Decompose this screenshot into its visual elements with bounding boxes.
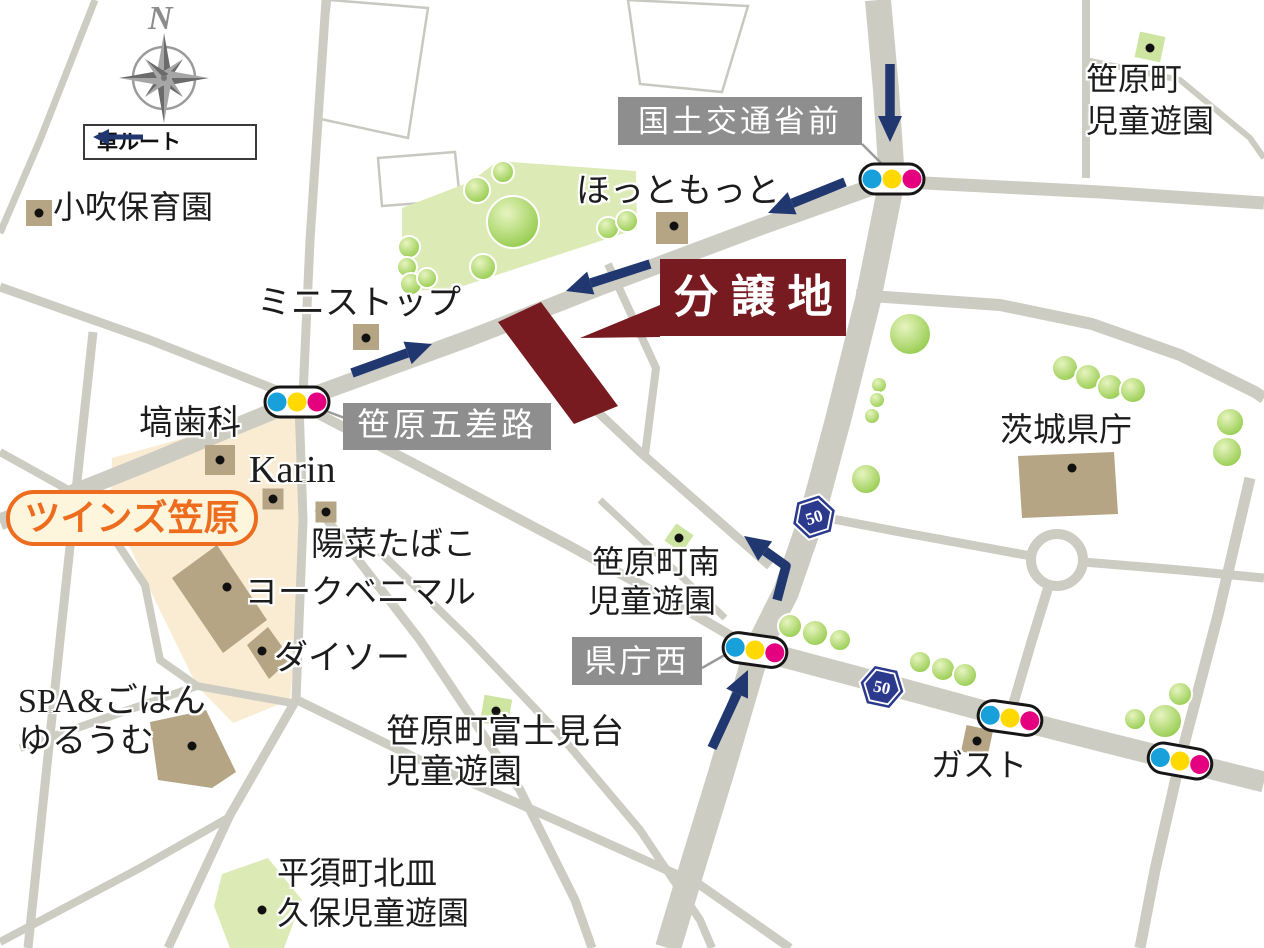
tree-icon — [931, 657, 955, 681]
label-ibaraki-kencho: 茨城県庁 — [1000, 415, 1132, 448]
poi-dot — [973, 737, 982, 746]
traffic-light-icon — [721, 631, 789, 670]
poi-dot — [35, 209, 44, 218]
tree-icon — [869, 392, 885, 408]
poi-dot — [362, 334, 371, 343]
poi-dot — [670, 222, 679, 231]
traffic-light-icon — [860, 164, 924, 194]
label-sasahara-cho-park-line1: 笹原町 — [1086, 63, 1182, 95]
tree-icon — [802, 620, 828, 646]
label-fujimidai-line2: 児童遊園 — [386, 756, 522, 790]
poi-dot — [675, 534, 684, 543]
car-route-arrow — [765, 551, 786, 600]
poi-dot — [1068, 464, 1077, 473]
road — [28, 332, 93, 948]
building — [1018, 452, 1118, 518]
road — [1010, 588, 1048, 715]
intersection-label-kencho-nishi: 県庁西 — [572, 637, 702, 685]
tree-icon — [851, 464, 881, 494]
label-gusto: ガスト — [931, 749, 1027, 781]
traffic-light-icon — [265, 387, 329, 417]
compass-rose-icon — [119, 33, 209, 123]
poi-dot — [258, 906, 267, 915]
roundabout — [1031, 534, 1083, 586]
city-block — [316, 0, 428, 138]
car-route-arrow-head — [93, 129, 109, 145]
poi-dot — [216, 456, 225, 465]
tree-icon — [1148, 704, 1182, 738]
car-route-arrow-icon — [85, 126, 145, 148]
tree-icon — [1124, 708, 1146, 730]
poi-dot — [223, 583, 232, 592]
label-hirasu-line2: 久保児童遊園 — [277, 897, 469, 929]
label-hotto-motto: ほっともっと — [576, 175, 780, 209]
poi-dot — [322, 508, 331, 517]
label-karin: Karin — [249, 451, 336, 489]
label-york-benimaru: ヨークベニマル — [245, 577, 476, 610]
intersection-label-gosaro: 笹原五差路 — [343, 403, 551, 450]
city-block — [628, 0, 748, 92]
label-daiso: ダイソー — [274, 642, 410, 676]
car-route-arrow-head — [566, 272, 594, 295]
label-ministop: ミニストップ — [257, 287, 461, 321]
tree-icon — [1120, 377, 1146, 403]
badge-twins-kasahara: ツインズ笠原 — [6, 490, 258, 546]
road — [905, 182, 1264, 203]
label-sasahara-minami-line2: 児童遊園 — [588, 585, 716, 617]
label-spa-gohan-line1: SPA&ごはん — [18, 685, 206, 719]
traffic-light-icon — [1146, 741, 1214, 782]
poi-dot — [269, 495, 278, 504]
road — [1083, 562, 1264, 578]
access-map: 5050 N 車ルート 国土交通省前 笹原五差路 県庁西 分譲地 ツインズ笠原 … — [0, 0, 1264, 948]
tree-icon — [871, 377, 887, 393]
tree-icon — [778, 614, 802, 638]
tree-icon — [487, 196, 539, 248]
tree-icon — [889, 313, 931, 355]
tree-icon — [864, 408, 880, 424]
sale-site-pointer — [580, 305, 660, 338]
poi-dot — [1146, 44, 1155, 53]
label-sasahara-cho-park-line2: 児童遊園 — [1086, 105, 1214, 137]
label-hanawa-dental: 塙歯科 — [139, 407, 241, 441]
label-hina-tabako: 陽菜たばこ — [311, 529, 476, 562]
tree-icon — [398, 236, 420, 258]
tree-icon — [1216, 408, 1244, 436]
sale-site-label: 分譲地 — [660, 259, 846, 336]
compass-north-label: N — [148, 2, 173, 36]
tree-icon — [829, 629, 851, 651]
tree-icon — [1168, 682, 1192, 706]
tree-icon — [464, 177, 490, 203]
tree-icon — [1212, 437, 1242, 467]
intersection-label-kokudo-mae: 国土交通省前 — [618, 97, 862, 145]
tree-icon — [953, 663, 977, 687]
label-fujimidai-line1: 笹原町富士見台 — [386, 716, 624, 750]
road — [0, 287, 297, 398]
tree-icon — [1097, 374, 1123, 400]
poi-dot — [258, 647, 267, 656]
road — [812, 515, 1031, 556]
tree-icon — [492, 161, 514, 183]
tree-icon — [470, 254, 496, 280]
label-spa-gohan-line2: ゆるうむ — [18, 725, 154, 759]
label-kobuki-hoikuen: 小吹保育園 — [53, 191, 213, 223]
label-sasahara-minami-line1: 笹原町南 — [592, 546, 720, 578]
poi-dot — [188, 742, 197, 751]
label-hirasu-line1: 平須町北皿 — [277, 857, 437, 889]
road — [303, 0, 326, 395]
tree-icon — [616, 210, 638, 232]
car-route-legend: 車ルート — [83, 124, 257, 160]
tree-icon — [909, 651, 931, 673]
